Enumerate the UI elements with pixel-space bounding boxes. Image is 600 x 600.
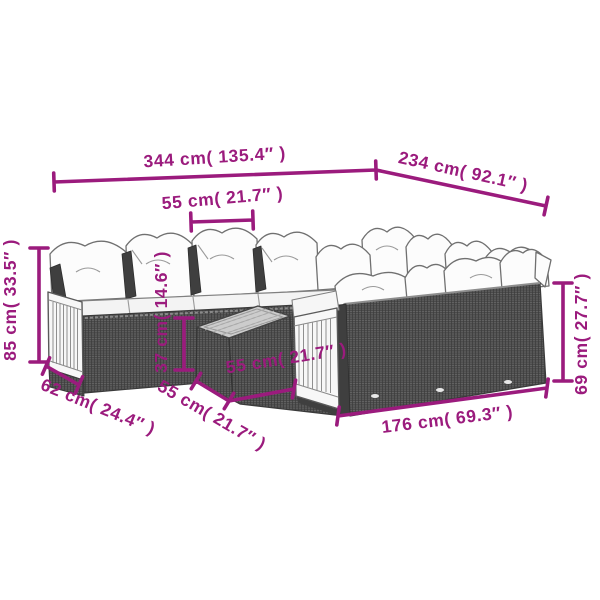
sofa-illustration [48, 227, 551, 416]
dimension-line [191, 211, 254, 231]
dimension-line [30, 248, 48, 362]
dimension-overall-height: 85 cm( 33.5″ ) [0, 239, 48, 362]
dimension-overall-width: 344 cm( 135.4″ ) [54, 143, 377, 191]
back-pillow [192, 228, 259, 297]
dimension-seat-module-width: 55 cm( 21.7″ ) [161, 183, 284, 231]
dimension-overall-height-label: 85 cm( 33.5″ ) [0, 239, 20, 361]
right-section-wall [336, 283, 546, 416]
product-diagram: 344 cm( 135.4″ ) 234 cm( 92.1″ ) 55 cm( … [0, 0, 600, 600]
dimension-back-wall-height: 69 cm( 27.7″ ) [554, 273, 591, 395]
dimension-seat-module-width-label: 55 cm( 21.7″ ) [161, 183, 284, 214]
dimension-backrest-height-label: 37 cm( 14.6″ ) [151, 251, 171, 373]
dimension-overall-depth: 234 cm( 92.1″ ) [376, 147, 548, 215]
dimension-line [554, 283, 572, 381]
dimension-back-wall-height-label: 69 cm( 27.7″ ) [571, 273, 591, 395]
dimension-overall-width-label: 344 cm( 135.4″ ) [143, 143, 286, 172]
sofa-dimension-illustration: 344 cm( 135.4″ ) 234 cm( 92.1″ ) 55 cm( … [0, 0, 600, 600]
